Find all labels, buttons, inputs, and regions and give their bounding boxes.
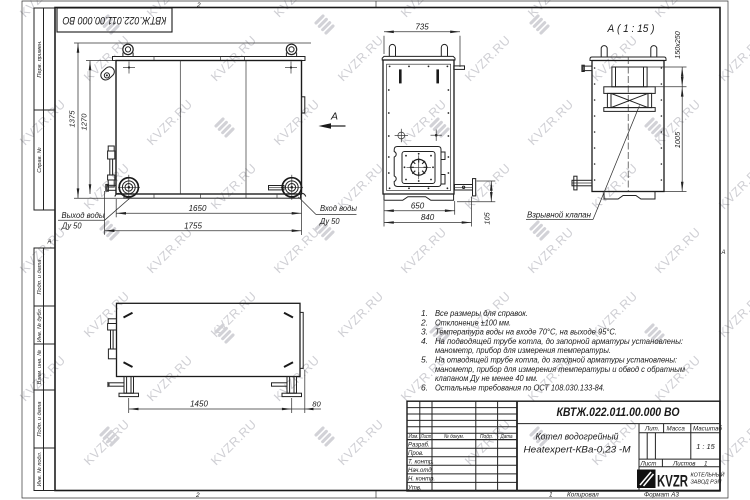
svg-text:Масштаб: Масштаб xyxy=(693,426,722,433)
svg-text:КВТЖ.022.011.00.000 ВО: КВТЖ.022.011.00.000 ВО xyxy=(62,14,166,26)
svg-text:А: А xyxy=(47,240,52,246)
svg-text:Листов: Листов xyxy=(672,460,696,467)
svg-text:ЗАВОД РЭП: ЗАВОД РЭП xyxy=(691,480,722,486)
svg-text:1: 1 xyxy=(549,492,553,499)
svg-text:KVZR.RU: KVZR.RU xyxy=(208,417,259,468)
svg-text:KVZR.RU: KVZR.RU xyxy=(81,33,132,84)
svg-text:Взрывной клапан: Взрывной клапан xyxy=(527,210,591,220)
svg-text:6.: 6. xyxy=(421,382,428,392)
svg-text:KVZR.RU: KVZR.RU xyxy=(144,353,195,404)
svg-text:А ( 1 : 15 ): А ( 1 : 15 ) xyxy=(607,23,655,35)
svg-text:Выход воды: Выход воды xyxy=(62,210,105,220)
svg-text:1375: 1375 xyxy=(68,110,77,128)
svg-text:735: 735 xyxy=(415,22,429,31)
svg-text:KVZR.RU: KVZR.RU xyxy=(335,417,386,468)
svg-text:Перв. примен.: Перв. примен. xyxy=(37,40,43,77)
svg-text:KVZR.RU: KVZR.RU xyxy=(652,225,703,276)
svg-text:80: 80 xyxy=(312,400,321,409)
svg-text:Лист: Лист xyxy=(640,460,657,467)
svg-text:KVZR.RU: KVZR.RU xyxy=(525,0,576,20)
svg-text:KVZR.RU: KVZR.RU xyxy=(144,97,195,148)
svg-text:KVZR.RU: KVZR.RU xyxy=(81,289,132,340)
svg-text:1450: 1450 xyxy=(190,400,208,409)
svg-text:Инв. № дубл.: Инв. № дубл. xyxy=(37,308,43,342)
svg-text:Разраб.: Разраб. xyxy=(408,443,430,449)
svg-text:Подп. и дата: Подп. и дата xyxy=(37,259,43,294)
svg-text:Heatexpert-КВа-0,23 -М: Heatexpert-КВа-0,23 -М xyxy=(524,445,631,456)
svg-text:1650: 1650 xyxy=(189,204,207,213)
svg-text:Нач.отд.: Нач.отд. xyxy=(408,468,433,474)
svg-text:KVZR.RU: KVZR.RU xyxy=(271,0,322,20)
svg-text:KVZR.RU: KVZR.RU xyxy=(144,225,195,276)
svg-text:Подп. и дата: Подп. и дата xyxy=(37,401,43,436)
svg-text:KVZR.RU: KVZR.RU xyxy=(271,225,322,276)
svg-text:KVZR.RU: KVZR.RU xyxy=(589,33,640,84)
svg-text:КВТЖ.022.011.00.000 ВО: КВТЖ.022.011.00.000 ВО xyxy=(557,407,680,419)
svg-text:КОТЕЛЬНЫЙ: КОТЕЛЬНЫЙ xyxy=(691,471,725,479)
svg-text:KVZR.RU: KVZR.RU xyxy=(716,33,750,84)
svg-text:Ду 50: Ду 50 xyxy=(319,216,340,226)
svg-text:1005: 1005 xyxy=(673,131,682,148)
svg-text:KVZR.RU: KVZR.RU xyxy=(462,161,513,212)
svg-text:Взам. инв. №: Взам. инв. № xyxy=(37,350,43,385)
svg-text:KVZR.RU: KVZR.RU xyxy=(525,97,576,148)
svg-text:105: 105 xyxy=(483,211,492,224)
svg-text:KVZR.RU: KVZR.RU xyxy=(716,161,750,212)
svg-text:KVZR.RU: KVZR.RU xyxy=(208,161,259,212)
svg-text:Лит.: Лит. xyxy=(644,426,660,433)
svg-text:Изм.: Изм. xyxy=(409,434,419,440)
svg-text:Вход воды: Вход воды xyxy=(320,203,357,213)
svg-text:Т. контр.: Т. контр. xyxy=(408,460,434,466)
svg-text:Масса: Масса xyxy=(667,426,686,433)
svg-text:150х250: 150х250 xyxy=(673,31,682,59)
svg-text:Дата: Дата xyxy=(500,434,513,440)
svg-text:KVZR.RU: KVZR.RU xyxy=(462,417,513,468)
svg-text:Остальные требования по ОСТ 10: Остальные требования по ОСТ 108.030.133-… xyxy=(435,382,605,392)
svg-text:Копировал: Копировал xyxy=(567,492,599,499)
svg-text:А: А xyxy=(721,250,726,256)
svg-text:KVZR.RU: KVZR.RU xyxy=(716,289,750,340)
svg-text:Лист: Лист xyxy=(420,434,431,440)
svg-text:KVZR.RU: KVZR.RU xyxy=(335,33,386,84)
svg-text:5.: 5. xyxy=(421,355,428,365)
svg-text:1: 1 xyxy=(704,460,707,467)
svg-text:KVZR.RU: KVZR.RU xyxy=(271,97,322,148)
svg-text:А: А xyxy=(330,111,338,123)
svg-text:Инв. № подл.: Инв. № подл. xyxy=(37,452,43,487)
svg-text:Формат А3: Формат А3 xyxy=(644,492,679,499)
svg-text:Справ. №: Справ. № xyxy=(37,147,43,172)
svg-text:KVZR.RU: KVZR.RU xyxy=(589,161,640,212)
svg-text:4.: 4. xyxy=(421,336,428,346)
svg-text:№ докум.: № докум. xyxy=(444,434,464,440)
svg-text:840: 840 xyxy=(421,213,435,222)
svg-text:2: 2 xyxy=(195,492,200,499)
svg-text:KVZR.RU: KVZR.RU xyxy=(335,289,386,340)
svg-text:KVZR.RU: KVZR.RU xyxy=(398,0,449,20)
svg-text:KVZR.RU: KVZR.RU xyxy=(398,225,449,276)
svg-text:Пров.: Пров. xyxy=(408,451,424,457)
svg-text:1270: 1270 xyxy=(80,113,89,131)
svg-text:KVZR.RU: KVZR.RU xyxy=(17,0,68,20)
svg-text:Ду 50: Ду 50 xyxy=(61,220,82,230)
svg-text:KVZR.RU: KVZR.RU xyxy=(462,33,513,84)
svg-text:KVZR.RU: KVZR.RU xyxy=(17,97,68,148)
svg-text:Н. контр.: Н. контр. xyxy=(408,477,435,483)
svg-text:KVZR.RU: KVZR.RU xyxy=(589,417,640,468)
svg-text:KVZR: KVZR xyxy=(657,472,688,491)
svg-text:KVZR.RU: KVZR.RU xyxy=(208,33,259,84)
svg-text:1755: 1755 xyxy=(184,221,202,230)
svg-text:Котел водогрейный: Котел водогрейный xyxy=(536,432,620,443)
svg-text:KVZR.RU: KVZR.RU xyxy=(652,0,703,20)
svg-text:650: 650 xyxy=(411,201,425,210)
svg-text:Утв.: Утв. xyxy=(407,485,422,491)
svg-text:1 : 15: 1 : 15 xyxy=(696,442,715,451)
svg-text:Подп.: Подп. xyxy=(480,434,493,440)
